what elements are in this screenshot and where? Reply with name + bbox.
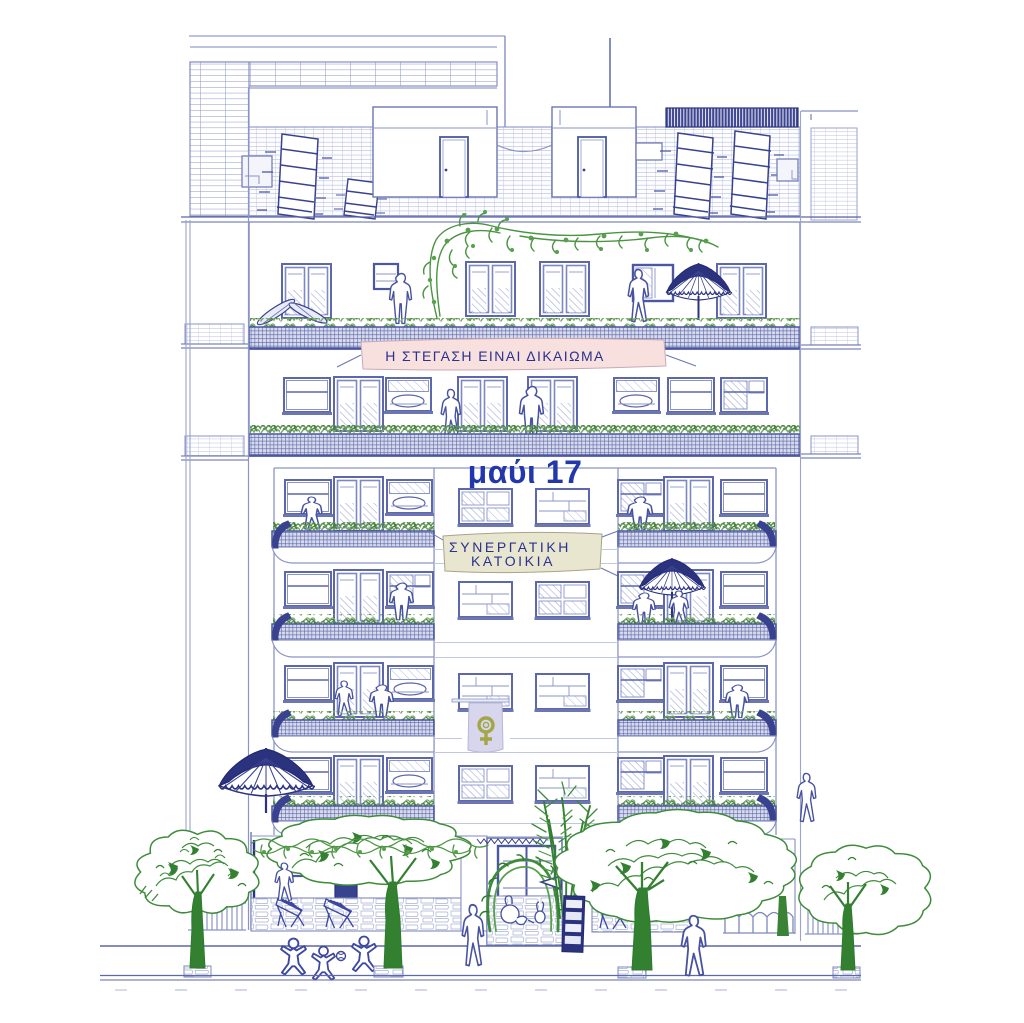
svg-text:μαύι 17: μαύι 17 — [468, 454, 583, 490]
svg-text:Η ΣΤΕΓΑΣΗ ΕΙΝΑΙ ΔΙΚΑΙΩΜΑ: Η ΣΤΕΓΑΣΗ ΕΙΝΑΙ ΔΙΚΑΙΩΜΑ — [385, 348, 605, 364]
svg-text:ΚΑΤΟΙΚΙΑ: ΚΑΤΟΙΚΙΑ — [471, 553, 555, 569]
